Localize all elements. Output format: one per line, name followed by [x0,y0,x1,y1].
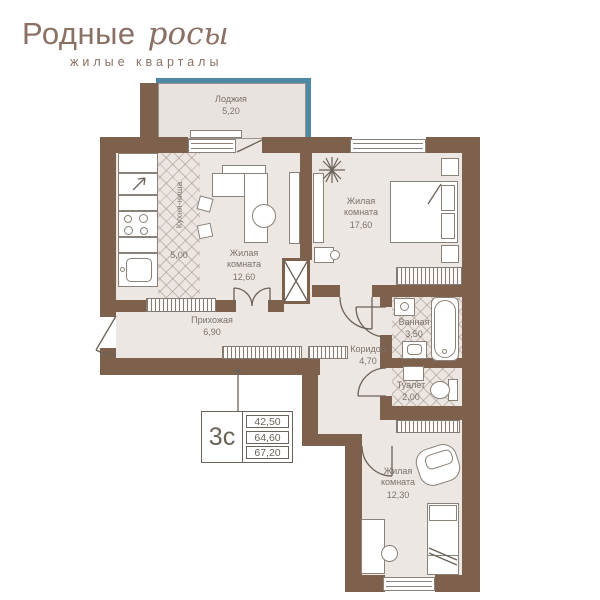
wall-bottom-1 [345,575,385,592]
total-area-value: 64,60 [246,431,289,444]
kitchen-counter-1 [118,153,158,173]
tv-stand [289,172,300,244]
round-table [252,204,276,228]
wall-hall-top-2 [216,300,236,312]
wc-sink [403,366,424,381]
floorplan-page: Родные росы жилые кварталы [0,0,600,600]
wall-right [462,137,480,592]
wall-bottom-2 [435,575,480,592]
wardrobe-hall-bottom [222,346,302,359]
loggia-glazing-right [306,78,311,139]
wall-living2-bottom-1 [312,285,340,297]
kitchen-counter-3 [118,237,158,253]
apartment-type-callout: 3с 42,50 64,60 67,20 [201,411,293,463]
balcony-sill [190,130,242,138]
desk-chair [381,545,398,562]
kitchen-sink-basin [126,258,152,282]
brand-name: Родные [22,16,136,52]
wall-hall-bottom [100,358,320,375]
stove-burner [124,226,133,235]
nightstand [441,158,459,176]
wall-hall-top-1 [116,300,148,312]
wall-wing-connector [302,434,362,446]
label-living1: Жилая комната 12,60 [213,248,275,283]
wall-between-living [300,153,312,260]
label-kitchen-area: 5,00 [158,250,200,261]
wall-wc-bottom [380,406,462,420]
washing-machine-door [400,302,409,311]
full-area-value: 67,20 [246,446,289,459]
electrical-panel [118,173,158,195]
wardrobe-living2 [396,267,462,285]
label-wc: Туалет 2,00 [390,380,432,404]
label-living3: Жилая комната 12,30 [368,466,428,501]
wall-bath-left-1 [380,297,392,307]
brand-name-script: росы [148,16,229,52]
stove-burner [124,215,132,223]
wall-corridor-left [302,358,318,446]
kitchen-counter-2 [118,195,158,211]
toilet-bowl [430,381,450,399]
wall-left [100,137,116,317]
shelving-unit [313,173,324,243]
bathtub-faucet [442,349,447,354]
bed-storage-box [427,555,459,575]
pillow [441,213,455,239]
label-corridor: Коридор 4,70 [340,344,396,368]
desk-lamp [330,250,340,260]
wall-living2-bottom-2 [372,285,462,297]
label-hall: Прихожая 6,90 [172,315,252,339]
bathroom-sink-basin [407,344,422,355]
label-kitchen: Кухня-ниша [174,165,184,245]
single-bed-pillow [429,505,457,521]
wardrobe-living3 [396,420,460,433]
wall-top-mid [262,137,352,153]
floor-balcony-doorway [236,137,262,153]
kitchen-faucet [120,267,125,272]
desk [361,519,385,574]
stove-burner [139,214,148,223]
label-living2: Жилая комната 17,60 [330,196,392,231]
loggia-left-wall [140,83,158,139]
living-area-value: 42,50 [246,415,289,428]
label-bath: Ванная 3,50 [390,317,438,341]
wall-room-bottom-left [345,446,362,592]
brand-subtitle: жилые кварталы [22,55,302,69]
vent-shaft [282,258,310,304]
nightstand [441,245,459,263]
brand-logo: Родные росы жилые кварталы [22,16,302,69]
label-loggia: Лоджия 5,20 [158,94,304,118]
apartment-type-label: 3с [202,412,243,462]
chair [197,223,214,240]
balcony-window [188,139,236,153]
window-living3 [383,577,435,591]
window-living2 [350,139,426,153]
stove-burner [140,227,148,235]
wardrobe-hall-top [146,298,216,312]
pillow [441,185,455,211]
